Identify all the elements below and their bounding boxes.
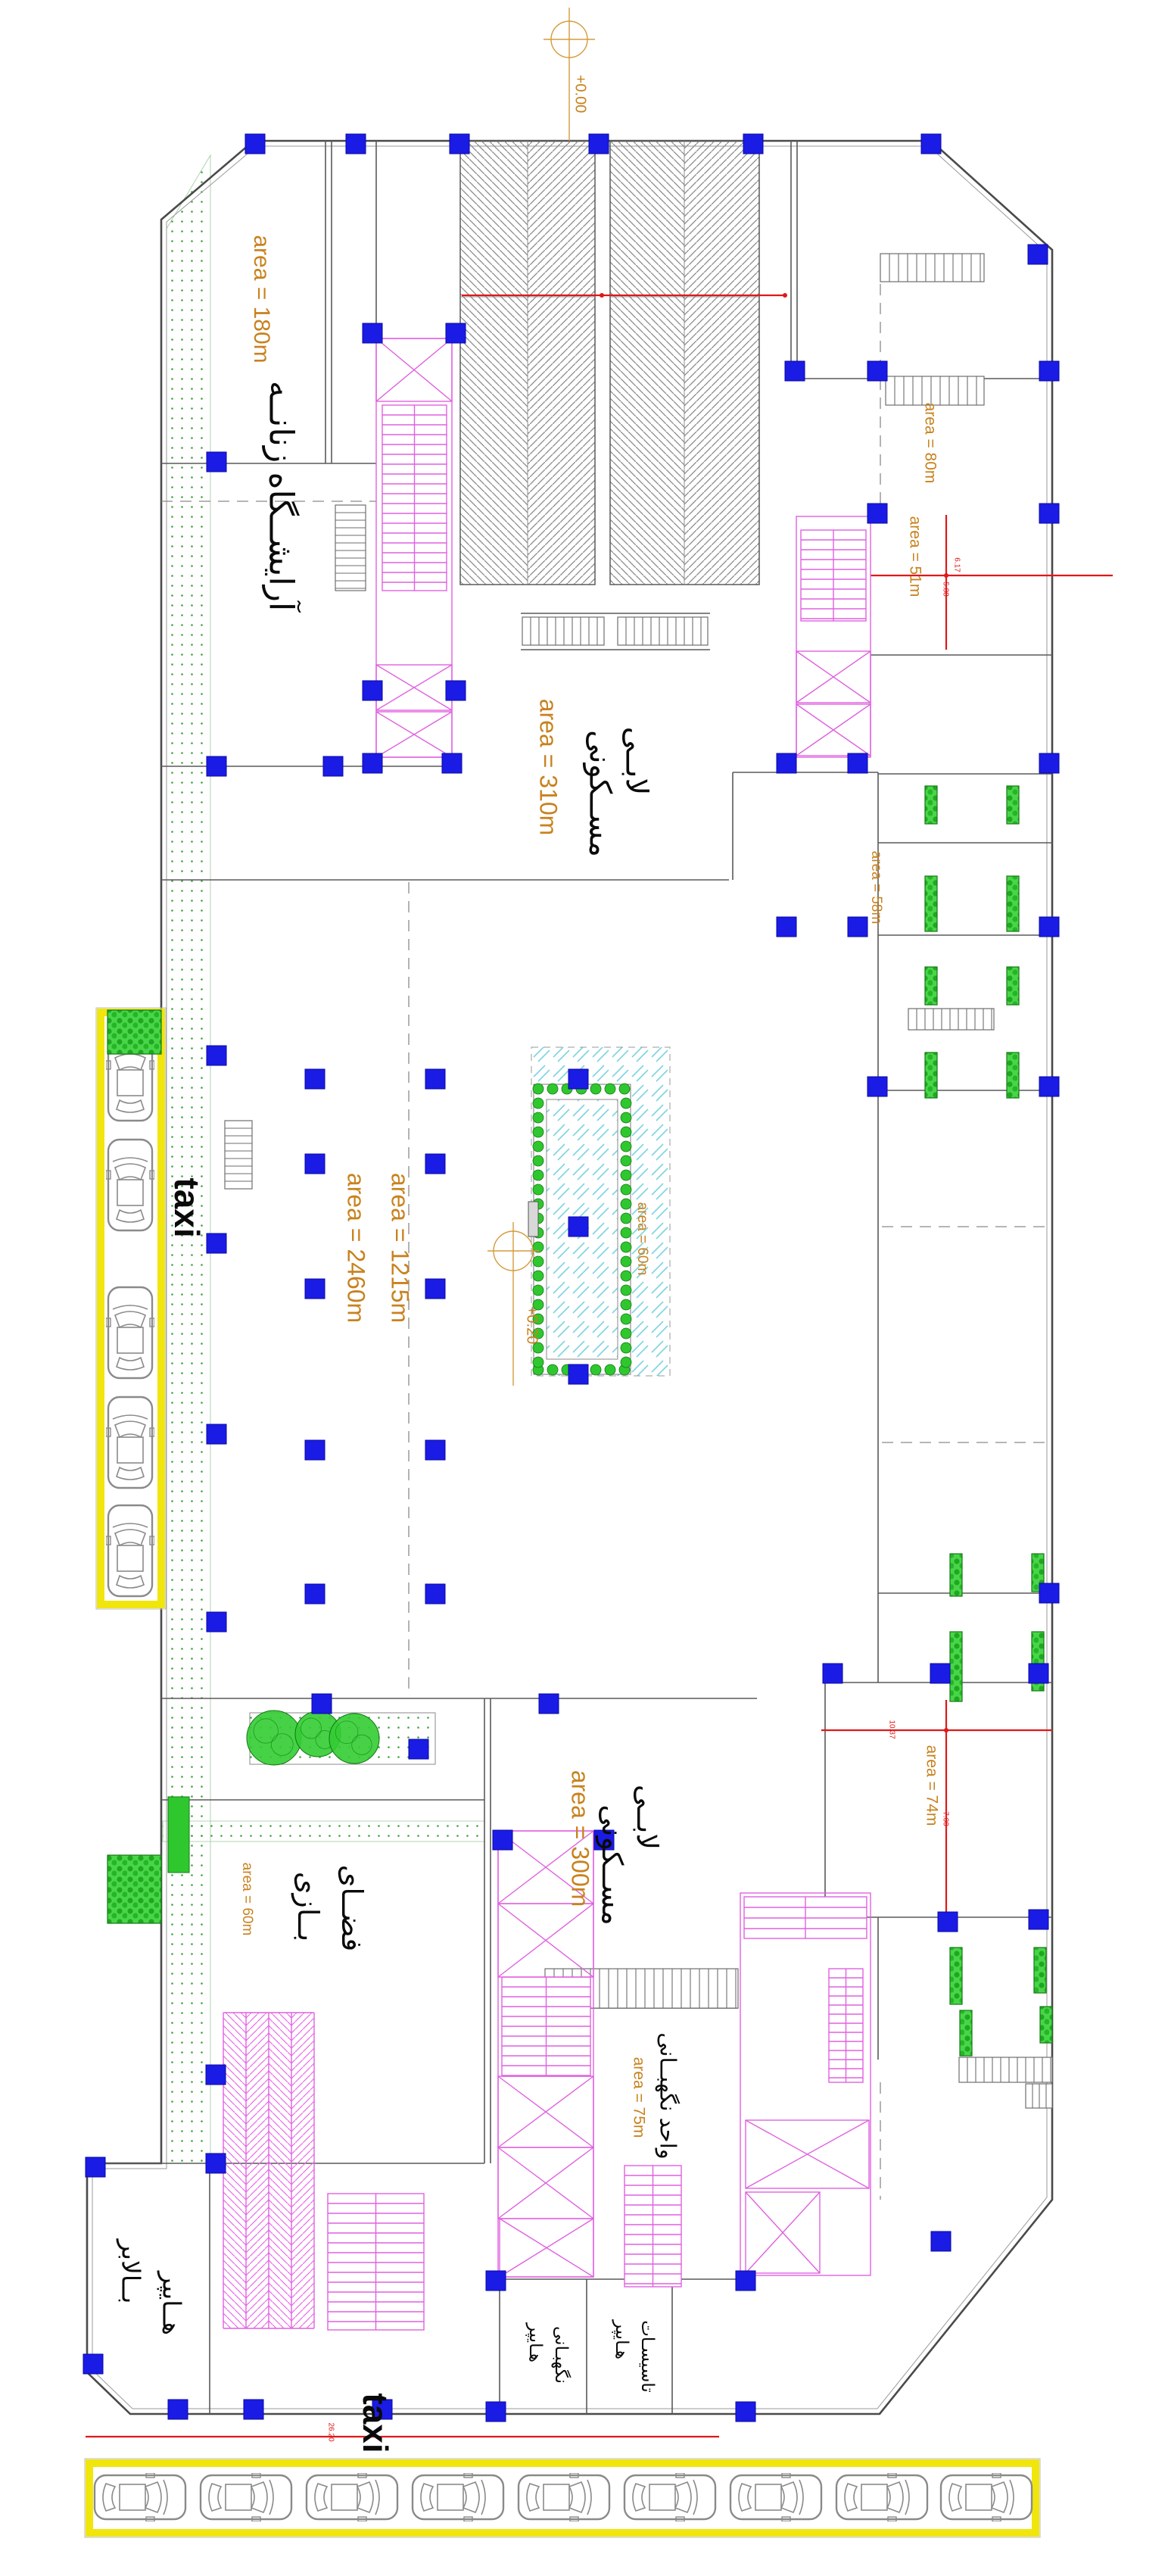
area-180-label: area = 180m (249, 235, 274, 363)
structural-column (1039, 1077, 1059, 1096)
structural-column (207, 1046, 226, 1065)
taxi-left-label: taxi (167, 1177, 207, 1237)
structural-column (206, 2065, 226, 2085)
structural-column (305, 1440, 325, 1460)
staircase (522, 617, 604, 645)
dim-6-17-label: 6.17 (952, 557, 961, 572)
structural-column (363, 753, 382, 773)
area-310-label: area = 310m (535, 699, 562, 836)
structural-column (1039, 917, 1059, 937)
structural-column (86, 2157, 105, 2177)
taxi-car (106, 1140, 154, 1230)
bush (533, 1357, 544, 1368)
staircase (886, 376, 984, 405)
bush (621, 1155, 631, 1166)
taxi-car (106, 1397, 154, 1488)
bush (621, 1271, 631, 1281)
bush (533, 1285, 544, 1296)
structural-column (425, 1440, 445, 1460)
structural-column (743, 134, 763, 154)
atrium-door (528, 1202, 538, 1237)
lift-fa-a-label: بــالابر (116, 2238, 145, 2304)
structural-column (931, 2231, 951, 2251)
bush (533, 1184, 544, 1195)
structural-column (823, 1664, 843, 1683)
dim-5-88-label: 5.88 (941, 582, 949, 597)
staircase (335, 505, 366, 591)
green-planter (1040, 2007, 1052, 2043)
structural-column (777, 753, 796, 773)
bush (621, 1314, 631, 1324)
taxi-bottom-label: taxi (356, 2393, 395, 2453)
structural-column (1029, 1664, 1048, 1683)
structural-column (425, 1154, 445, 1174)
staircase (880, 254, 984, 282)
taxi-car (519, 2473, 609, 2521)
area-74-label: area = 74m (923, 1745, 940, 1826)
structural-column (777, 917, 796, 937)
structural-column (1039, 504, 1059, 523)
structural-column (207, 756, 226, 776)
structural-column (1029, 1910, 1048, 1929)
bush (619, 1084, 630, 1094)
bush (533, 1271, 544, 1281)
green-planter (925, 1053, 937, 1098)
green-planter (1007, 786, 1019, 824)
bush (590, 1084, 601, 1094)
taxi-car (95, 2473, 185, 2521)
taxi-car (201, 2473, 291, 2521)
bush (533, 1170, 544, 1180)
bush (621, 1299, 631, 1310)
structural-column (442, 753, 462, 773)
lobby2-fa-b-label: مســکونی (595, 1804, 628, 1925)
green-block (168, 1797, 189, 1873)
structural-column (785, 361, 805, 381)
structural-column (938, 1912, 958, 1932)
salon-fa-label: آرایشــگاه زنانــه (261, 381, 301, 613)
play-fa-b-label: بــازی (291, 1872, 323, 1942)
structural-column (207, 1233, 226, 1253)
bush (533, 1141, 544, 1152)
structural-column (486, 2402, 506, 2422)
taxi-car (413, 2473, 503, 2521)
structural-column (207, 452, 226, 472)
taxi-car (624, 2473, 715, 2521)
structural-column (245, 134, 265, 154)
dim-7-00-label: 7.00 (941, 1811, 949, 1826)
green-planter (950, 1632, 962, 1701)
guardroom-fa-b-label: هـایپر (525, 2322, 546, 2362)
play-fa-a-label: فضــای (335, 1865, 367, 1952)
structural-column (848, 917, 867, 937)
structural-column (312, 1694, 332, 1714)
green-planter (107, 1855, 161, 1923)
structural-column (1039, 753, 1059, 773)
taxi-car (307, 2473, 397, 2521)
area-60-play-label: area = 60m (239, 1863, 255, 1936)
structural-column (1028, 245, 1048, 264)
floor-plan-canvas: area = 180mآرایشــگاه زنانــهarea = 310m… (0, 0, 1168, 2576)
structural-column (867, 361, 887, 381)
taxi-bay-left (96, 1008, 166, 1609)
area-75-label: area = 75m (630, 2057, 647, 2138)
green-planter (950, 1948, 962, 2004)
structural-column (305, 1584, 325, 1604)
bush (621, 1098, 631, 1109)
lobby1-fa-a-label: لابــی (619, 727, 653, 796)
bush (605, 1364, 615, 1375)
structural-column (425, 1584, 445, 1604)
structural-column (867, 504, 887, 523)
structural-column (848, 753, 867, 773)
area-58-label: area = 58m (868, 851, 884, 925)
bush (621, 1213, 631, 1224)
structural-column (493, 1830, 512, 1850)
structural-column (568, 1069, 588, 1089)
structural-column (305, 1279, 325, 1299)
structural-column (244, 2400, 263, 2419)
structural-column (425, 1279, 445, 1299)
area-51-label: area = 51m (906, 516, 923, 597)
area-1215-label: area = 1215m (387, 1173, 414, 1323)
lift-fa-b-label: هــایپر (157, 2270, 185, 2335)
structural-column (305, 1154, 325, 1174)
bush (621, 1343, 631, 1353)
staircase (959, 2057, 1052, 2082)
structural-column (346, 134, 366, 154)
bush (621, 1285, 631, 1296)
bush (621, 1184, 631, 1195)
structural-column (736, 2271, 755, 2291)
bush (621, 1112, 631, 1123)
bush (621, 1227, 631, 1238)
green-planter (1034, 1948, 1046, 1993)
structural-column (921, 134, 941, 154)
stair-core (740, 1893, 871, 2275)
bush (621, 1357, 631, 1368)
guard-unit-fa-label: واحد نگهبــانی (655, 2032, 680, 2160)
structural-column (206, 2153, 226, 2173)
bush (533, 1256, 544, 1267)
bush (533, 1084, 544, 1094)
structural-column (736, 2402, 755, 2422)
structural-column (207, 1612, 226, 1632)
bush (533, 1098, 544, 1109)
bush (547, 1084, 558, 1094)
structural-column (425, 1069, 445, 1089)
bush (621, 1170, 631, 1180)
entrance-ramp-hatch (460, 141, 759, 585)
structural-column (207, 1424, 226, 1444)
structural-column (568, 1364, 588, 1384)
bush (547, 1364, 558, 1375)
green-planter (925, 876, 937, 931)
structural-column (323, 756, 343, 776)
bush (621, 1256, 631, 1267)
taxi-car (836, 2473, 927, 2521)
facroom-fa-a-label: تاسیسـات (638, 2320, 658, 2393)
area-300-label: area = 300m (567, 1770, 594, 1907)
area-60-atrium-label: area = 60m (634, 1202, 650, 1276)
green-planter (925, 967, 937, 1005)
bush (533, 1155, 544, 1166)
structural-column (450, 134, 469, 154)
green-planter (1007, 1053, 1019, 1098)
structural-column (409, 1739, 428, 1759)
structural-column (83, 2354, 103, 2374)
lobby2-fa-a-label: لابــی (631, 1785, 662, 1850)
green-planter (107, 1010, 161, 1054)
facroom-fa-b-label: هـایپر (612, 2319, 632, 2359)
bush (621, 1127, 631, 1137)
staircase (618, 617, 708, 645)
structural-column (168, 2400, 188, 2419)
level-020-label: +0.20 (524, 1306, 540, 1345)
green-planter (950, 1554, 962, 1596)
bush (621, 1141, 631, 1152)
bush (621, 1242, 631, 1252)
bush (605, 1084, 615, 1094)
parking-ramp-hatch (223, 2013, 314, 2328)
structural-column (867, 1077, 887, 1096)
structural-column (1039, 361, 1059, 381)
green-planter (1007, 967, 1019, 1005)
bush (621, 1199, 631, 1209)
guardroom-fa-a-label: نگهبـانی (551, 2326, 572, 2384)
structural-column (305, 1069, 325, 1089)
dim-26-20-label: 26.20 (326, 2422, 335, 2441)
staircase (908, 1009, 994, 1030)
bush (590, 1364, 601, 1375)
structural-column (446, 323, 466, 343)
structural-column (589, 134, 609, 154)
bush (533, 1112, 544, 1123)
area-80-label: area = 80m (921, 403, 939, 484)
taxi-car (106, 1287, 154, 1378)
structural-column (486, 2271, 506, 2291)
structural-column (363, 323, 382, 343)
structural-column (568, 1217, 588, 1237)
green-planter (1007, 876, 1019, 931)
structural-column (363, 681, 382, 700)
taxi-car (106, 1505, 154, 1596)
green-planter (960, 2010, 972, 2056)
taxi-bay-bottom (85, 2459, 1040, 2537)
dim-10-37-label: 10.37 (887, 1720, 895, 1739)
taxi-car (941, 2473, 1032, 2521)
green-planter (925, 786, 937, 824)
taxi-car (730, 2473, 821, 2521)
level-000-label: +0.00 (572, 75, 589, 114)
bush (533, 1127, 544, 1137)
structural-column (930, 1664, 950, 1683)
lobby1-fa-b-label: مســکونی (582, 730, 616, 857)
structural-column (446, 681, 466, 700)
area-2460-label: area = 2460m (343, 1173, 370, 1323)
bush (621, 1328, 631, 1339)
structural-column (539, 1694, 559, 1714)
structural-column (1039, 1583, 1059, 1603)
staircase (225, 1121, 252, 1189)
